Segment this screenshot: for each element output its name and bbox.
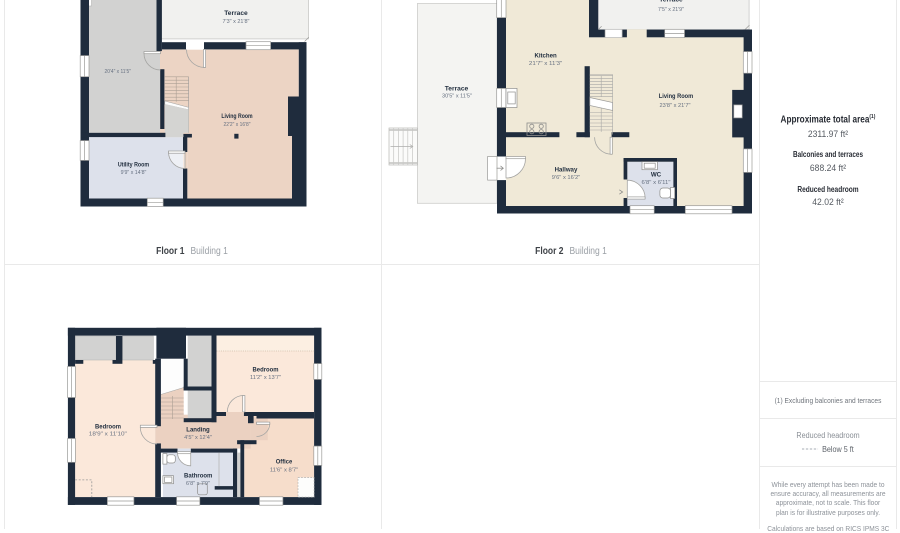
svg-text:9'9" x 14'8": 9'9" x 14'8" xyxy=(121,170,147,176)
svg-text:Utility Room: Utility Room xyxy=(118,162,150,169)
svg-text:20'4" x 11'5": 20'4" x 11'5" xyxy=(105,69,131,75)
svg-text:Bathroom: Bathroom xyxy=(184,473,213,480)
svg-text:11'2" x 13'7": 11'2" x 13'7" xyxy=(250,375,281,381)
svg-text:Living Room: Living Room xyxy=(659,93,694,100)
svg-text:Hallway: Hallway xyxy=(555,167,578,174)
svg-text:Terrace: Terrace xyxy=(445,86,469,93)
svg-text:21'7" x 11'3": 21'7" x 11'3" xyxy=(529,61,562,67)
svg-text:11'6" x 8'7": 11'6" x 8'7" xyxy=(270,468,298,474)
svg-text:7'5" x 21'9": 7'5" x 21'9" xyxy=(658,7,684,13)
svg-text:6'8" x 7'9": 6'8" x 7'9" xyxy=(186,481,210,487)
svg-text:30'5" x 11'5": 30'5" x 11'5" xyxy=(442,93,472,99)
svg-text:Bedroom: Bedroom xyxy=(253,366,279,373)
svg-text:Office: Office xyxy=(276,458,293,465)
svg-text:Kitchen: Kitchen xyxy=(534,53,557,60)
svg-text:Landing: Landing xyxy=(186,427,210,434)
svg-text:22'2" x 16'8": 22'2" x 16'8" xyxy=(224,122,251,128)
svg-text:6'8" x 6'11": 6'8" x 6'11" xyxy=(642,180,671,186)
svg-text:Terrace: Terrace xyxy=(224,10,248,17)
svg-text:4'5" x 12'4": 4'5" x 12'4" xyxy=(184,435,212,441)
svg-text:7'3" x 21'8": 7'3" x 21'8" xyxy=(223,19,250,25)
svg-text:23'8" x 21'7": 23'8" x 21'7" xyxy=(660,103,691,109)
svg-text:Living Room: Living Room xyxy=(221,113,253,120)
svg-text:WC: WC xyxy=(651,172,662,179)
svg-text:18'9" x 11'10": 18'9" x 11'10" xyxy=(89,431,127,437)
svg-text:Terrace: Terrace xyxy=(659,0,683,3)
svg-text:Bedroom: Bedroom xyxy=(95,423,121,430)
svg-text:9'6" x 16'2": 9'6" x 16'2" xyxy=(552,175,580,181)
